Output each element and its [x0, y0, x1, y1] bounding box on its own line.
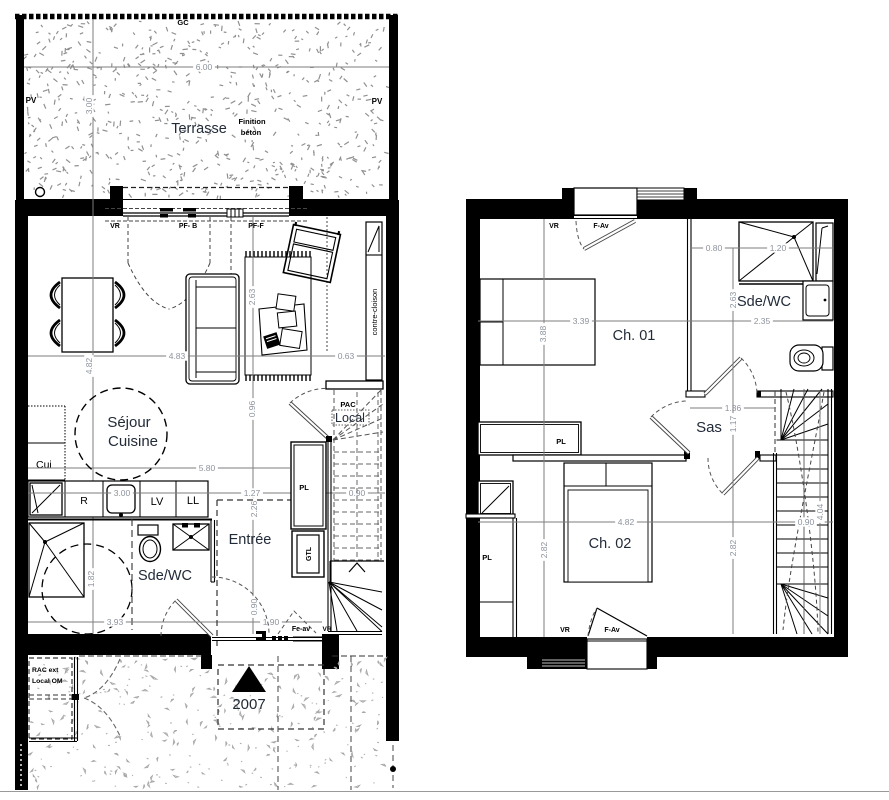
svg-text:3.00: 3.00 [114, 488, 131, 498]
svg-text:Entrée: Entrée [229, 532, 272, 548]
svg-text:0.90: 0.90 [249, 598, 259, 615]
svg-text:3.88: 3.88 [538, 325, 548, 342]
svg-text:Ch. 02: Ch. 02 [589, 536, 632, 552]
svg-text:0.63: 0.63 [338, 351, 355, 361]
svg-text:PV: PV [26, 96, 37, 105]
svg-text:Local: Local [335, 411, 365, 425]
svg-text:5.80: 5.80 [199, 463, 216, 473]
svg-text:3.00: 3.00 [84, 97, 94, 114]
svg-text:6.00: 6.00 [196, 62, 213, 72]
svg-text:Cui: Cui [36, 459, 52, 471]
svg-text:PF- B: PF- B [179, 223, 197, 230]
svg-text:3.39: 3.39 [573, 316, 590, 326]
svg-text:2.26: 2.26 [249, 500, 259, 517]
svg-text:2.63: 2.63 [728, 291, 738, 308]
svg-text:Local OM: Local OM [32, 678, 63, 685]
svg-text:Sas: Sas [696, 419, 722, 436]
svg-text:VR: VR [549, 223, 559, 230]
svg-text:0.90: 0.90 [798, 517, 815, 527]
svg-text:F-Av: F-Av [593, 223, 608, 230]
svg-text:RAC ext: RAC ext [32, 667, 59, 674]
svg-text:PAC: PAC [340, 400, 356, 409]
svg-text:PV: PV [372, 97, 383, 106]
svg-text:PL: PL [482, 553, 492, 562]
svg-text:Cuisine: Cuisine [108, 433, 158, 450]
svg-text:F-Av: F-Av [604, 627, 619, 634]
svg-text:béton: béton [241, 128, 262, 137]
svg-text:VR: VR [560, 627, 570, 634]
svg-text:Finition: Finition [238, 117, 265, 126]
svg-text:0.96: 0.96 [247, 400, 257, 417]
svg-text:2.35: 2.35 [754, 316, 771, 326]
svg-text:LV: LV [151, 496, 164, 508]
svg-text:Fe-av: Fe-av [292, 626, 310, 633]
svg-text:1.20: 1.20 [770, 243, 787, 253]
svg-text:Sde/WC: Sde/WC [737, 294, 791, 310]
svg-text:4.83: 4.83 [169, 351, 186, 361]
svg-text:R: R [80, 495, 88, 507]
svg-text:Séjour: Séjour [107, 414, 150, 431]
svg-text:PL: PL [299, 483, 309, 492]
svg-text:2007: 2007 [232, 696, 265, 713]
svg-text:PF-F: PF-F [248, 223, 264, 230]
svg-text:3.93: 3.93 [107, 617, 124, 627]
svg-text:4.04: 4.04 [815, 503, 825, 520]
svg-text:1.17: 1.17 [728, 415, 738, 432]
svg-text:2.63: 2.63 [247, 288, 257, 305]
svg-text:Sde/WC: Sde/WC [138, 568, 192, 584]
svg-text:1.27: 1.27 [244, 488, 261, 498]
svg-text:GTL: GTL [306, 546, 313, 561]
svg-text:VR: VR [110, 223, 120, 230]
svg-text:2.82: 2.82 [728, 539, 738, 556]
svg-text:contre-cloison: contre-cloison [370, 289, 379, 336]
svg-text:Terrasse: Terrasse [171, 121, 227, 137]
svg-text:GC: GC [177, 18, 189, 27]
svg-text:4.82: 4.82 [84, 357, 94, 374]
svg-text:Ch. 01: Ch. 01 [613, 328, 656, 344]
svg-text:2.82: 2.82 [539, 541, 549, 558]
svg-text:1.82: 1.82 [86, 570, 96, 587]
svg-text:0.80: 0.80 [706, 243, 723, 253]
svg-text:PL: PL [556, 437, 566, 446]
svg-text:1.90: 1.90 [263, 617, 280, 627]
svg-text:LL: LL [187, 495, 199, 507]
svg-text:4.82: 4.82 [618, 517, 635, 527]
